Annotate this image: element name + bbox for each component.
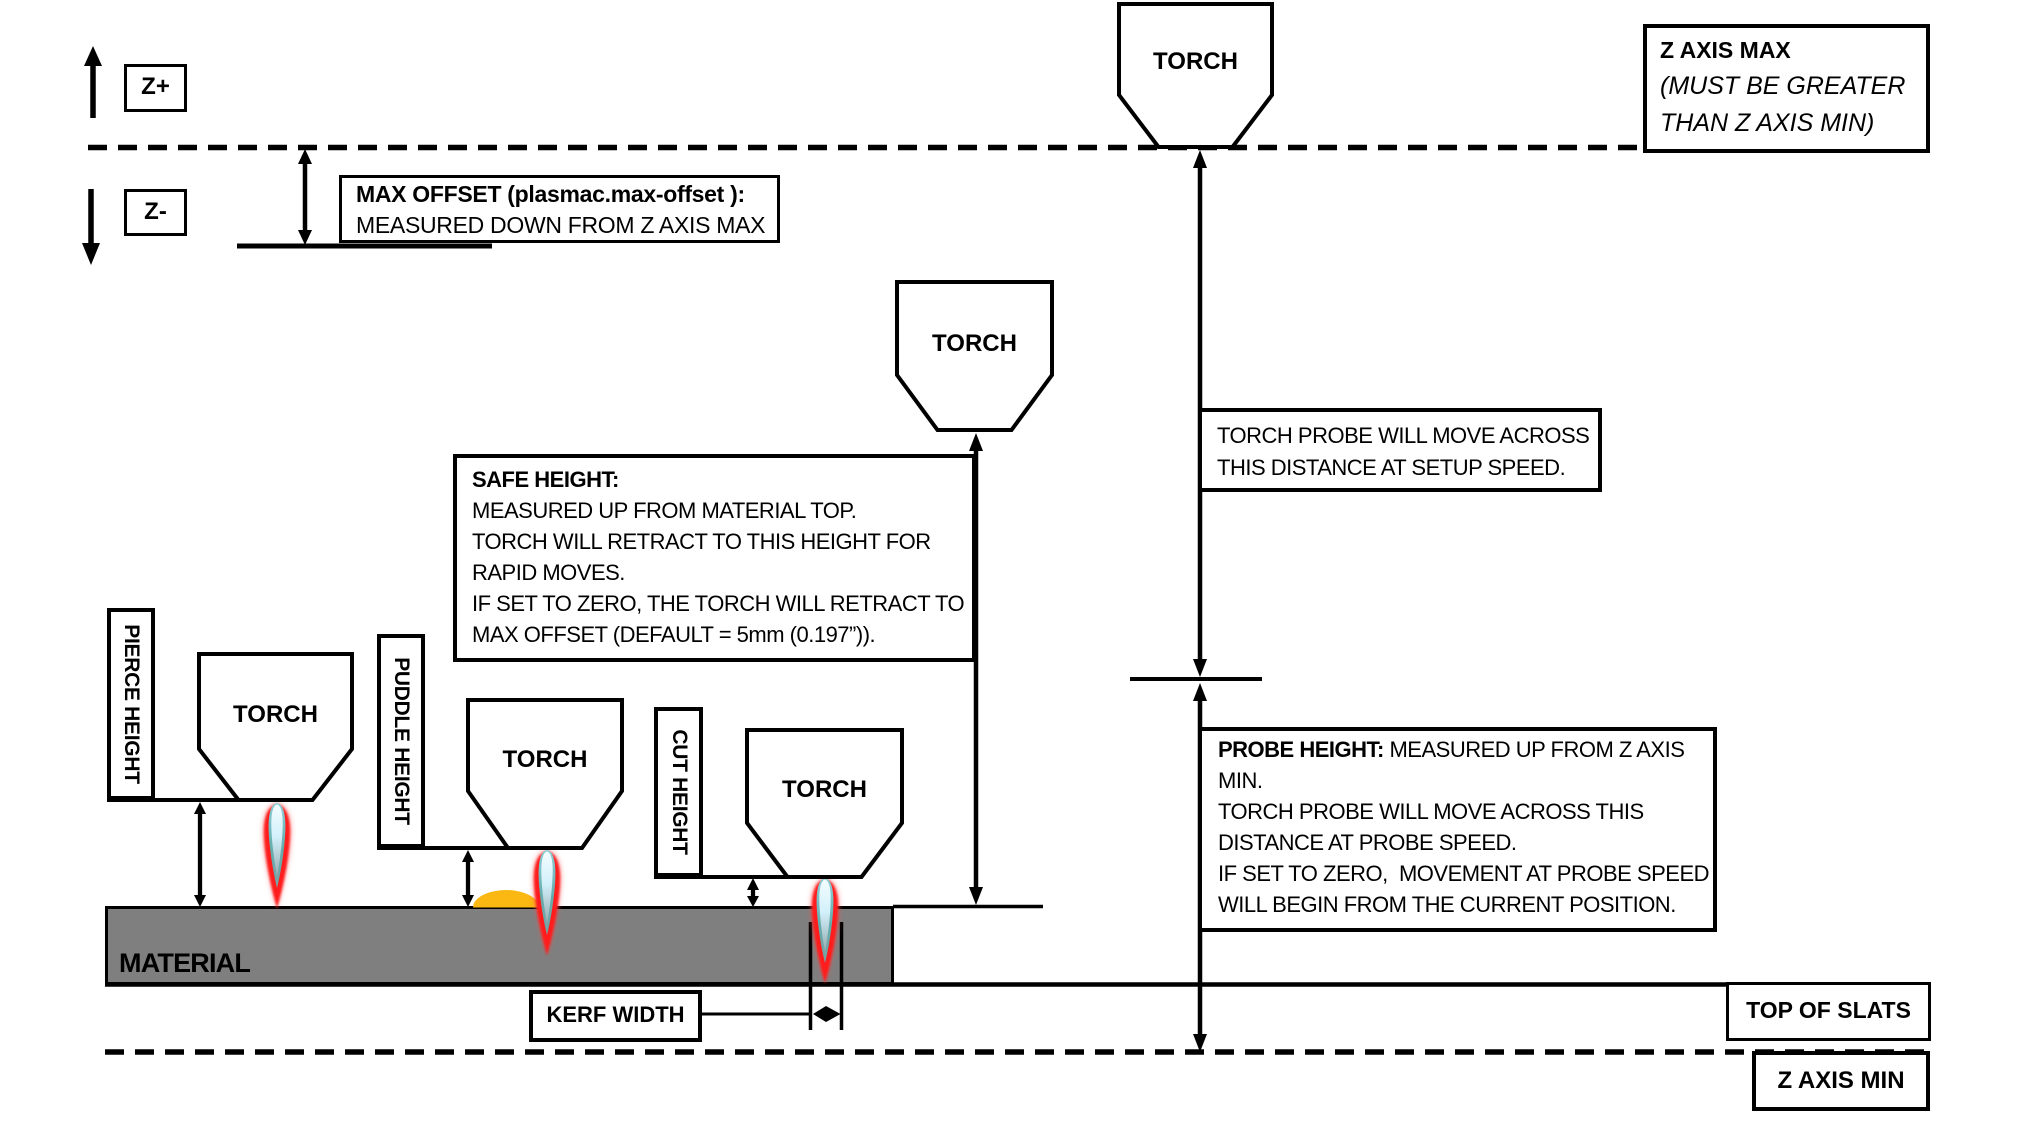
svg-text:TORCH: TORCH <box>932 330 1017 357</box>
svg-text:TORCH: TORCH <box>1153 48 1238 75</box>
svg-text:TORCH: TORCH <box>503 746 588 773</box>
svg-text:TORCH: TORCH <box>233 701 318 728</box>
svg-text:TORCH: TORCH <box>782 776 867 803</box>
